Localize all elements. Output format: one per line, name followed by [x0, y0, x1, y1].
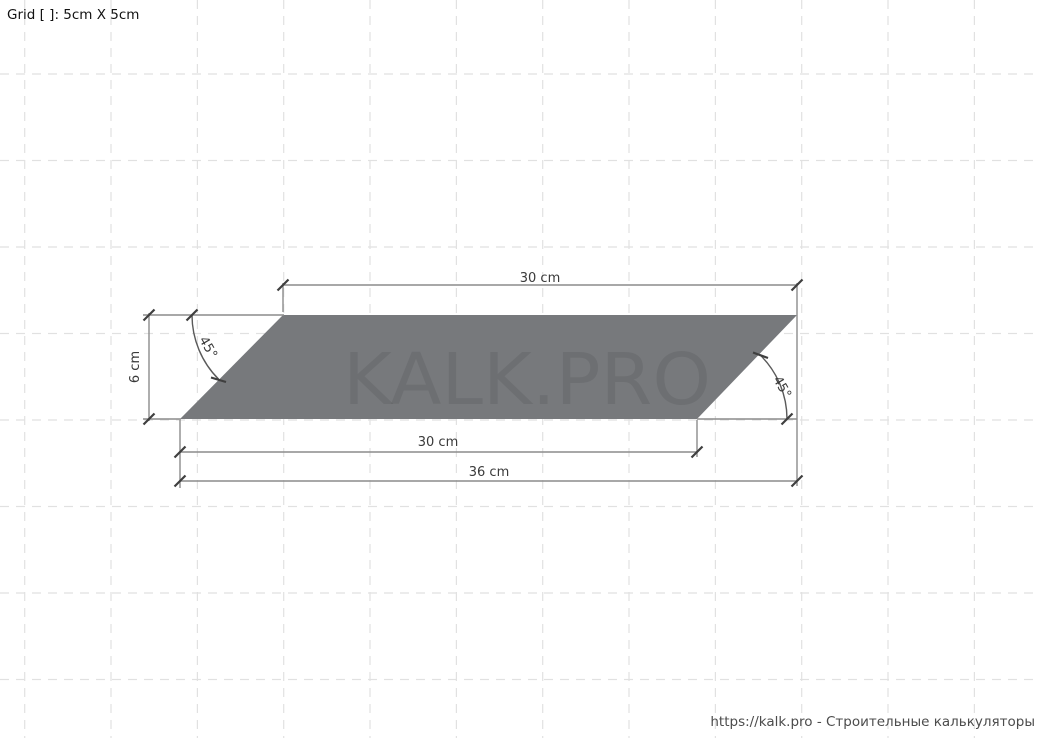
dim-overall-width-label: 36 cm	[469, 465, 510, 480]
plank-drawing: KALK.PRO 30 cm 6 cm	[0, 0, 1040, 738]
dim-left-angle-label: 45°	[195, 334, 220, 361]
dim-height-label: 6 cm	[128, 351, 143, 383]
dim-bottom-width: 30 cm	[175, 435, 703, 458]
dim-top-width: 30 cm	[278, 271, 803, 291]
drawing-canvas: KALK.PRO 30 cm 6 cm	[0, 0, 1040, 738]
dim-left-angle: 45°	[187, 310, 227, 383]
dim-bottom-width-label: 30 cm	[418, 435, 459, 450]
dim-right-angle-label: 45°	[769, 374, 794, 401]
dim-top-width-label: 30 cm	[520, 271, 561, 286]
grid-size-label: Grid [ ]: 5cm X 5cm	[7, 7, 139, 23]
dim-overall-width: 36 cm	[175, 465, 803, 487]
watermark: KALK.PRO	[343, 338, 711, 421]
dim-height: 6 cm	[128, 310, 155, 425]
footer-credit: https://kalk.pro - Строительные калькуля…	[710, 714, 1035, 730]
dim-right-angle: 45°	[753, 353, 794, 425]
